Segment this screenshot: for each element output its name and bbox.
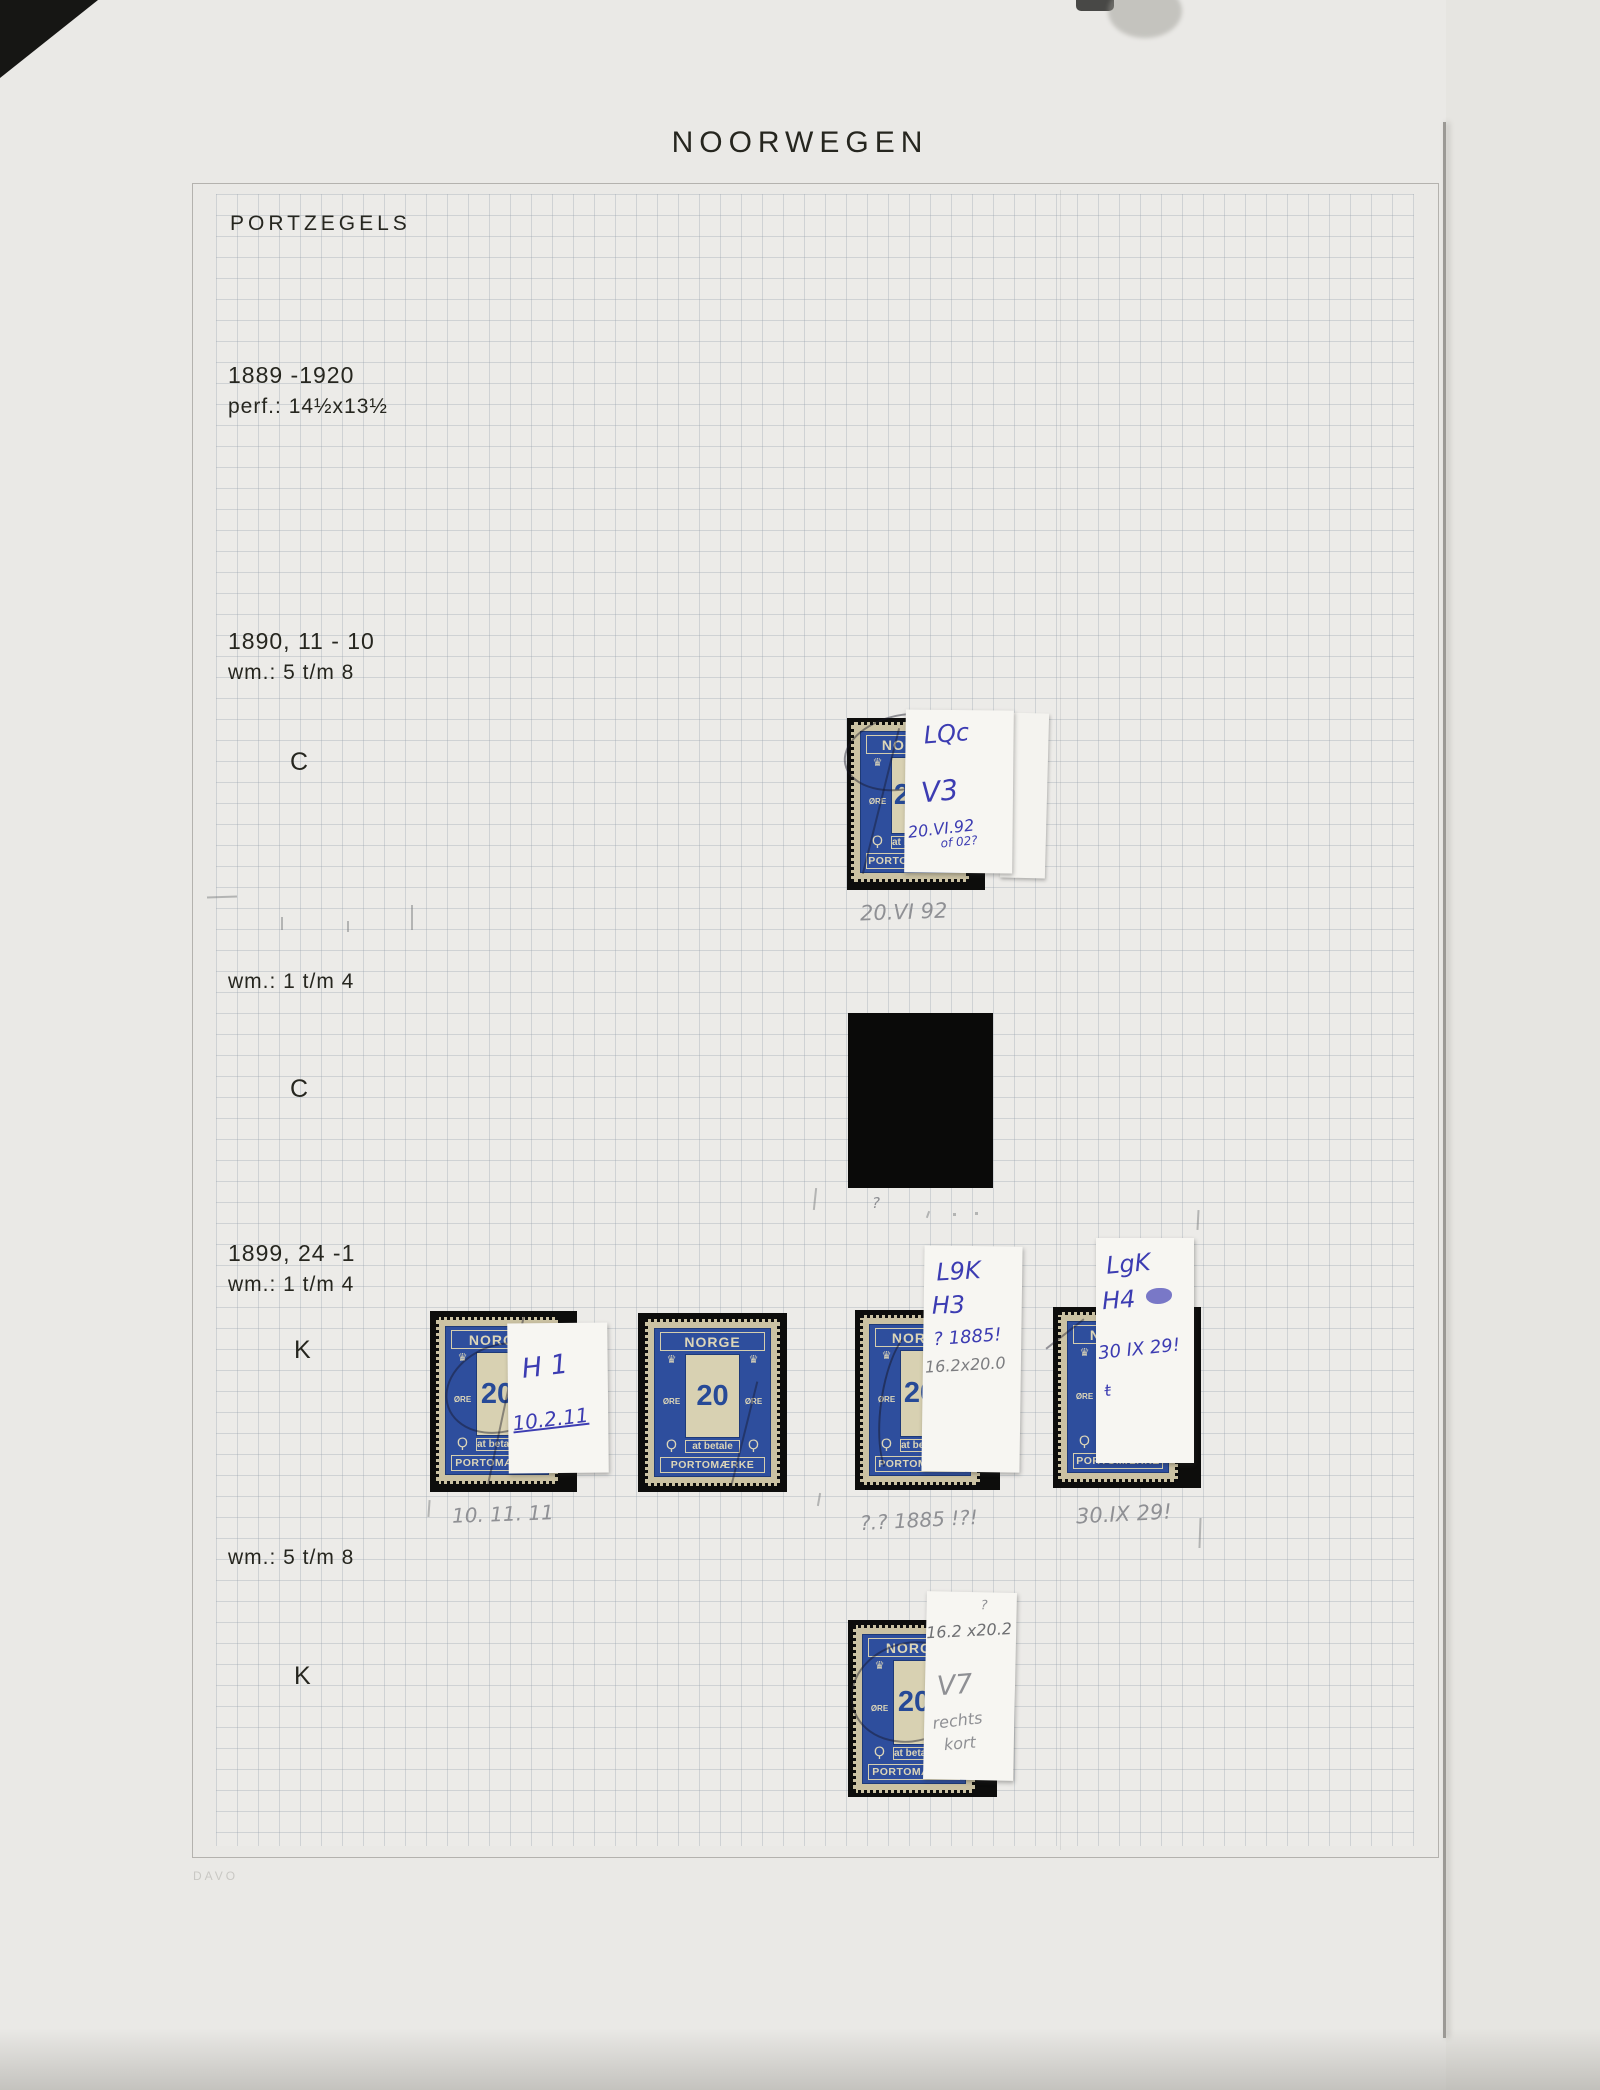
label-wm-5tm8-1899: wm.: 5 t/m 8 [228, 1546, 354, 1570]
note-line: 16.2 x20.2 [926, 1619, 1017, 1642]
note-line: 16.2x20.0 [924, 1352, 1021, 1376]
stamp-value: 20 [685, 1354, 740, 1438]
page-edge-shadow [1443, 122, 1446, 2038]
pencil-tick [347, 921, 349, 932]
brand-mark: DAVO [193, 1869, 238, 1883]
note-line: 10.2.11 [511, 1401, 609, 1436]
label-perf: perf.: 14½x13½ [228, 395, 388, 419]
fold-line [1060, 190, 1061, 1850]
crown-icon: ♛ [749, 1355, 759, 1366]
page-bottom-shadow [0, 2028, 1600, 2090]
label-type-k-1899: K [294, 1336, 311, 1365]
stamp-country-text: NORGE [660, 1332, 765, 1351]
posthorn-icon: Ϙ [748, 1437, 759, 1451]
note-line: ? 1885! [933, 1323, 1022, 1350]
note-line: V3 [920, 768, 1015, 810]
note-slip: H 1 10.2.11 [507, 1322, 609, 1473]
label-issue-1899: 1899, 24 -1 [228, 1240, 355, 1267]
pencil-tick [975, 1212, 978, 1215]
page-title: NOORWEGEN [630, 126, 970, 160]
note-line: kort [943, 1729, 1014, 1754]
note-slip: LgK H4 30 IX 29! t [1096, 1238, 1194, 1463]
stamp-caption: 30.IX 29! [1075, 1500, 1172, 1529]
ore-label: ØRE [663, 1397, 680, 1406]
stamp: NORGE ♛ ØRE Ϙ 20 at betale ♛ ØRE Ϙ PORTO… [645, 1319, 780, 1486]
grid-paper [216, 194, 1414, 1846]
stamp-face: NORGE ♛ ØRE Ϙ 20 at betale ♛ ØRE Ϙ PORTO… [654, 1328, 771, 1477]
due-text: at betale [685, 1440, 740, 1453]
top-edge-smudge [1108, 0, 1182, 38]
label-type-c-1890b: C [290, 1075, 308, 1104]
pencil-tick [953, 1213, 956, 1216]
label-wm-5tm8-1890: wm.: 5 t/m 8 [228, 661, 354, 685]
label-type-k-1899b: K [294, 1662, 311, 1691]
note-line: V7 [936, 1665, 1016, 1702]
note-line: LQc [923, 715, 1015, 750]
crown-icon: ♛ [1080, 1348, 1090, 1359]
posthorn-icon: Ϙ [874, 1744, 885, 1758]
crown-icon: ♛ [667, 1355, 677, 1366]
note-slip: ? 16.2 x20.2 V7 rechts kort [923, 1591, 1017, 1781]
label-wm-1tm4-1890: wm.: 1 t/m 4 [228, 970, 354, 994]
posthorn-icon: Ϙ [1079, 1433, 1090, 1447]
page-edge-background [1446, 0, 1600, 2090]
posthorn-icon: Ϙ [872, 833, 883, 847]
label-type-c-1890: C [290, 748, 308, 777]
pencil-question-mark: ? [872, 1194, 880, 1212]
label-wm-1tm4-1899: wm.: 1 t/m 4 [228, 1273, 354, 1297]
black-placeholder [848, 1013, 993, 1188]
posthorn-icon: Ϙ [457, 1435, 468, 1449]
pencil-tick [411, 905, 413, 930]
note-line: t [1103, 1369, 1195, 1400]
label-period: 1889 -1920 [228, 362, 354, 389]
stamp-caption: 10. 11. 11 [452, 1500, 555, 1528]
section-heading: PORTZEGELS [230, 212, 411, 236]
portomaerke-text: PORTOMÆRKE [660, 1457, 765, 1473]
corner-shadow [0, 0, 98, 78]
posthorn-icon: Ϙ [666, 1437, 677, 1451]
pencil-tick [281, 917, 283, 930]
label-issue-1890: 1890, 11 - 10 [228, 628, 375, 655]
note-line: H3 [931, 1288, 1022, 1319]
note-line: ? [981, 1598, 1017, 1614]
scanned-album-page: NOORWEGEN PORTZEGELS 1889 -1920 perf.: 1… [0, 0, 1600, 2090]
ore-label: ØRE [869, 797, 886, 806]
note-line: L9K [936, 1254, 1023, 1287]
note-slip: LQc V3 20.VI.92 of 02? [904, 709, 1014, 873]
note-line: 30 IX 29! [1097, 1333, 1195, 1364]
note-line: rechts [931, 1704, 1015, 1733]
note-line: H 1 [520, 1344, 609, 1385]
ore-label: ØRE [1076, 1392, 1093, 1401]
stamp-caption: 20.VI 92 [860, 898, 948, 925]
note-line: LgK [1105, 1244, 1195, 1280]
note-slip: L9K H3 ? 1885! 16.2x20.0 [921, 1245, 1022, 1472]
